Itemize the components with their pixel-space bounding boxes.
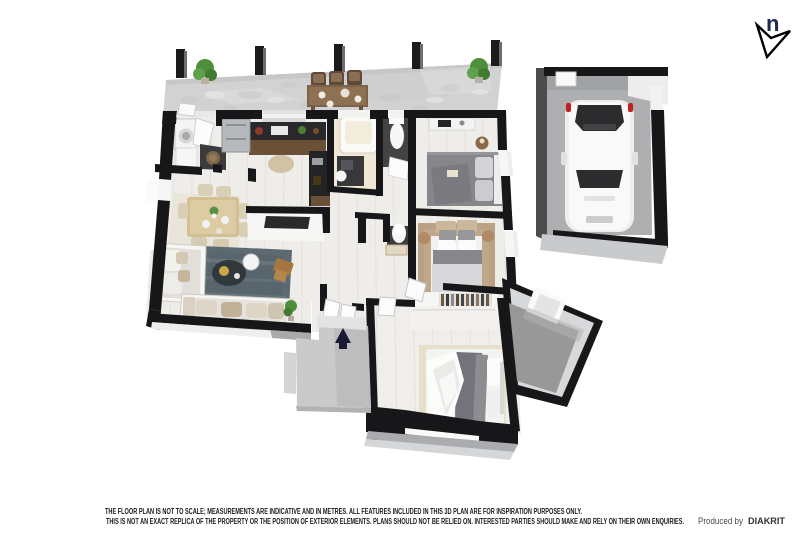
svg-text:Produced by: Produced by: [698, 516, 743, 527]
svg-text:DIAKRIT: DIAKRIT: [748, 516, 785, 527]
svg-text:THE FLOOR PLAN IS NOT TO SCALE: THE FLOOR PLAN IS NOT TO SCALE; MEASUREM…: [105, 507, 582, 516]
svg-text:THIS IS NOT AN EXACT REPLICA O: THIS IS NOT AN EXACT REPLICA OF THE PROP…: [106, 517, 684, 526]
svg-text:n: n: [766, 11, 779, 36]
